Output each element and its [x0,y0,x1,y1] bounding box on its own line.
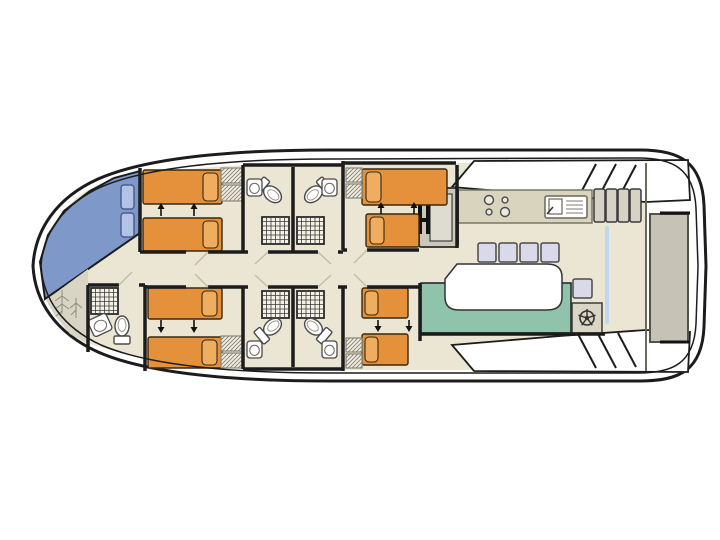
wardrobe-shelves [221,353,243,368]
shower [262,217,289,244]
toilet [114,316,130,344]
companionway-step [594,189,605,222]
dinette-chair [478,243,496,262]
bed-pillow [366,172,381,202]
wardrobe-shelves [221,185,243,201]
washbasin [322,341,337,358]
stern-platform [650,214,688,342]
bow-seat-cushion [121,213,134,237]
shower [297,217,324,244]
companionway-step [630,189,641,222]
shower [297,291,324,318]
bow-seat-cushion [121,185,134,209]
dinette-chair [520,243,538,262]
wardrobe-shelves [346,338,362,352]
patio-door [605,226,609,324]
bed-pillow [203,221,218,248]
saloon-table [445,264,562,310]
wardrobe-shelves [221,336,243,351]
wardrobe-shelves [221,168,243,183]
companionway-step [618,189,629,222]
wardrobe-shelves [346,168,362,182]
wardrobe-shelves [346,184,362,198]
boat-deck-plan [0,0,720,540]
helm-seat [573,279,592,298]
bed-pillow [202,340,217,365]
bed-pillow [365,337,378,362]
washbasin [322,179,337,196]
wardrobe-shelves [346,354,362,368]
bed-pillow [203,173,218,201]
shower [91,288,118,314]
galley-sink-basin [549,199,562,214]
washbasin [247,341,262,358]
dinette-chair [499,243,517,262]
shower [262,291,289,318]
bed-pillow [365,291,378,315]
companionway-step [606,189,617,222]
bed-pillow [370,217,384,244]
bed-pillow [202,291,217,316]
dinette-chair [541,243,559,262]
washbasin [247,179,262,196]
